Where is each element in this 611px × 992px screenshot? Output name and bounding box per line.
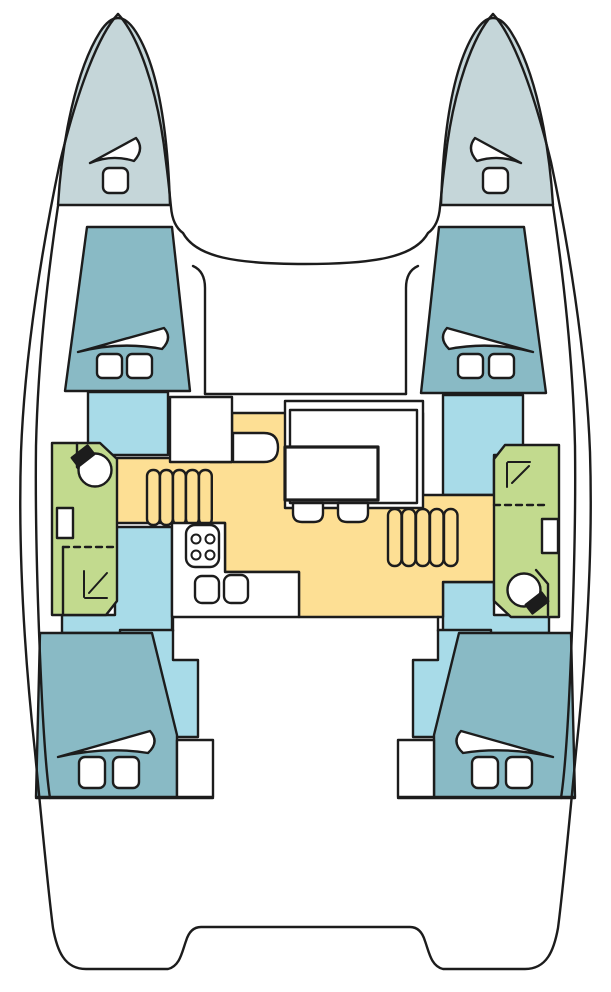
stair-tread [402,509,416,566]
stove-icon [186,525,219,567]
pillow-icon [489,354,514,378]
dinette-table [285,447,378,500]
burner-icon [206,551,215,560]
stair-tread [416,509,430,566]
burner-icon [206,535,215,544]
stair-tread [147,470,160,525]
hatch-icon [103,168,128,193]
chart-table [233,433,278,462]
cabin-aft-port [36,633,177,797]
sink-icon [57,508,73,538]
stair-tread [430,509,444,566]
stair-tread [173,470,186,525]
stair-tread [186,470,199,525]
wardrobe [170,397,232,462]
stair-tread [444,509,458,566]
burner-icon [192,535,201,544]
saloon-front-wall-port [193,266,205,394]
pillow-icon [113,757,139,788]
cabin-aft-starboard [434,633,575,797]
pillow-icon [97,354,122,378]
cockpit-step-port [177,740,213,797]
stair-tread [388,509,402,566]
seat-icon [293,503,323,522]
stair-tread [160,470,173,525]
stair-tread [199,470,212,525]
seat-icon [338,503,368,522]
pillow-icon [472,757,498,788]
boat-plan [20,14,590,969]
stairs-starboard [388,509,458,566]
sink-icon [195,576,219,603]
sink-icon [542,519,558,553]
sink-icon [224,575,248,603]
stairs-port [147,470,212,525]
hatch-icon [483,168,508,193]
foredeck-edge [118,14,493,264]
pillow-icon [506,757,532,788]
bow-lockers [58,18,553,205]
burner-icon [192,551,201,560]
floorplan-canvas [0,0,611,992]
pillow-icon [458,354,483,378]
pillow-icon [79,757,105,788]
catamaran-floorplan [0,0,611,992]
pillow-icon [127,354,152,378]
cockpit-step-starboard [398,740,434,797]
saloon-front-wall-starboard [406,266,418,394]
